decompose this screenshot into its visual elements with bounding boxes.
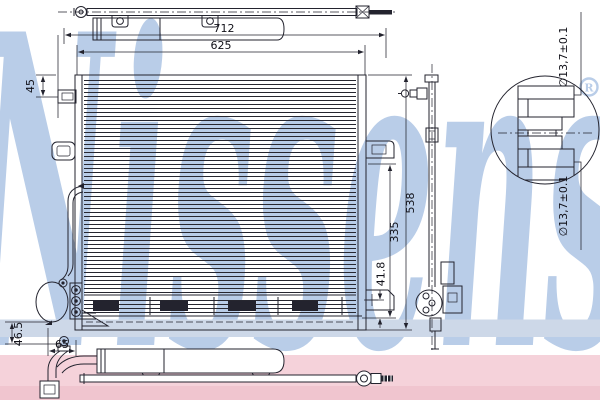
registered-mark: R <box>584 82 594 95</box>
tube-block-1 <box>93 300 119 311</box>
tube-block-2 <box>160 301 188 311</box>
tube-block-4 <box>292 301 318 311</box>
drier-cylinder <box>97 349 284 373</box>
port-bolt-1-center <box>74 288 78 292</box>
outlet-tube-ring <box>357 371 372 386</box>
outlet-tube-hex <box>371 374 381 384</box>
dim-335-label: 335 <box>388 222 401 243</box>
drawing-canvas: Nissens R 712 62 <box>0 0 600 400</box>
port-bolt-3-center <box>74 310 78 314</box>
dim-712-label: 712 <box>214 22 235 35</box>
core-fins <box>84 78 356 294</box>
front-view <box>36 75 394 330</box>
band-pink-deep <box>0 386 600 400</box>
port-bolt-2-center <box>74 299 78 303</box>
dim-625-label: 625 <box>211 39 232 52</box>
elbow-bolt-center <box>62 339 66 343</box>
dia-bottom-label: ∅13,7±0.1 <box>557 176 570 237</box>
dim-45-label: 45 <box>24 79 37 93</box>
technical-drawing-page: Nissens R 712 62 <box>0 0 600 400</box>
tube-block-3 <box>228 301 256 311</box>
top-tube-stub <box>369 10 392 15</box>
elbow-end-block <box>40 381 59 398</box>
dim-46-5-label: 46.5 <box>12 322 25 347</box>
dim-41-8-label: 41.8 <box>375 262 388 287</box>
fitting-top-bolt-center <box>61 281 64 284</box>
dim-538-label: 538 <box>404 193 417 214</box>
dia-top-label: ∅13,7±0.1 <box>557 27 570 88</box>
outlet-tube <box>80 375 356 382</box>
